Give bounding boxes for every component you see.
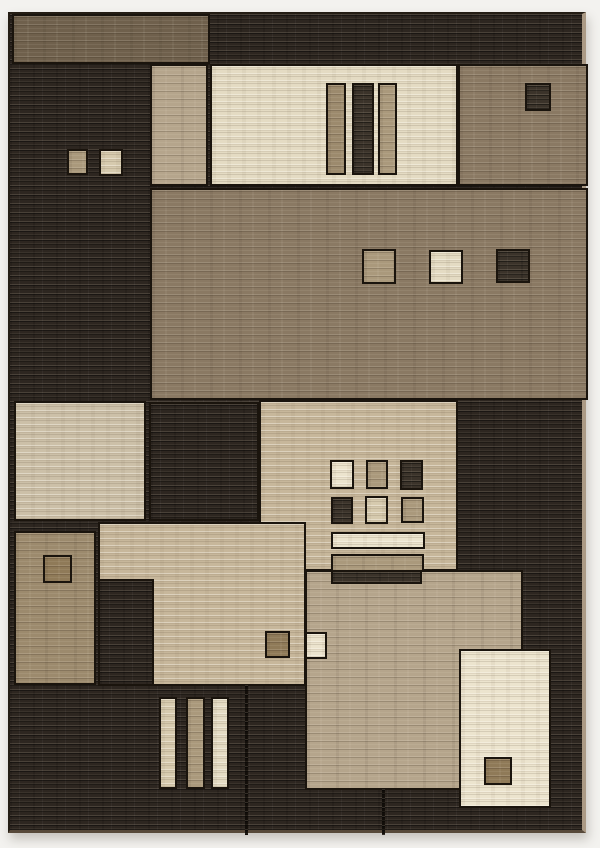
- rug-block-stack-bar-dark: [331, 570, 422, 584]
- rug-block-tan-outline-square: [43, 555, 72, 583]
- rug-block-grid-square-beige: [365, 496, 388, 524]
- rug-block-lower-dark-strip: [98, 579, 154, 686]
- rug-block-grid-square-dark: [400, 460, 423, 490]
- rug-block-upper-panel-bar-brown: [378, 83, 397, 175]
- rug-block-top-brown-block: [12, 14, 210, 64]
- rug-block-stack-bar-cream: [331, 532, 425, 549]
- rug-block-grid-square-cream: [330, 460, 354, 489]
- rug-block-grid-square-tan-2: [401, 497, 424, 523]
- rug-block-upper-panel-bar-dark: [352, 83, 374, 175]
- rug-block-seam-line-left: [245, 685, 248, 835]
- rug-block-mid-greige-block: [14, 401, 146, 521]
- rug-block-small-square-brown: [265, 631, 290, 658]
- rug-block-small-square-cream: [305, 632, 327, 659]
- rug-block-field-square-tan: [362, 249, 396, 284]
- rug-block-bottom-bar-tan: [186, 697, 205, 789]
- rug-block-bottom-panel-square: [484, 757, 512, 785]
- photo-stage: [0, 0, 600, 848]
- rug-block-upper-tan-strip: [150, 64, 208, 186]
- rug-block-bottom-bar-beige: [159, 697, 177, 789]
- rug-block-grid-square-dark-2: [331, 497, 353, 524]
- rug-block-center-brown-field: [150, 188, 588, 400]
- rug-photo: [8, 12, 586, 833]
- rug-block-bottom-bar-cream: [211, 697, 229, 789]
- rug-block-grid-square-tan: [366, 460, 388, 489]
- rug-block-upper-panel-bar-tan: [326, 83, 346, 175]
- rug-block-left-square-beige: [99, 149, 123, 176]
- rug-block-mid-dark-block: [149, 402, 259, 521]
- rug-block-upper-brown-panel: [458, 64, 588, 186]
- rug-block-field-square-dark: [496, 249, 530, 283]
- rug-block-seam-line-right: [382, 789, 385, 835]
- rug-block-upper-dark-square: [525, 83, 551, 111]
- rug-block-left-square-tan: [67, 149, 88, 175]
- rug-block-field-square-cream: [429, 250, 463, 284]
